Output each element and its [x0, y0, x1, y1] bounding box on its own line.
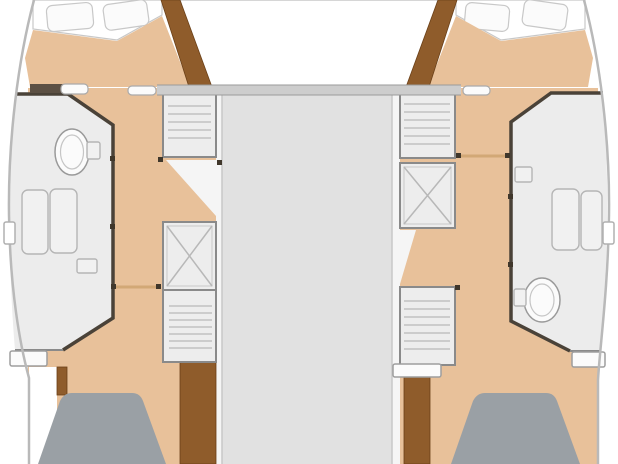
bulkhead-band	[157, 85, 461, 95]
pillow-icon	[102, 0, 149, 31]
hinge-dot	[508, 194, 513, 199]
pillow-icon	[521, 0, 568, 31]
floor-plan-canvas	[0, 0, 618, 464]
locker-icon	[515, 167, 532, 182]
starboard-stairs-fwd	[400, 90, 455, 158]
hinge-dot	[110, 156, 115, 161]
door-threshold	[463, 86, 490, 95]
hull-step	[4, 222, 15, 244]
starboard-stairs-aft	[400, 287, 455, 365]
pillow-icon	[46, 2, 94, 32]
port-stairs-aft	[163, 290, 216, 362]
port-stairs-fwd	[163, 92, 216, 157]
port-aft-wall	[180, 362, 216, 464]
sink-counter-icon	[581, 191, 602, 250]
toilet-cistern-icon	[87, 142, 100, 159]
sink-counter-icon	[50, 189, 77, 253]
step-tab	[393, 364, 441, 377]
shower-icon	[552, 189, 579, 250]
step-tab	[10, 351, 47, 366]
hinge-dot	[158, 157, 163, 162]
hinge-dot	[456, 153, 461, 158]
toilet-cistern-icon	[514, 289, 526, 306]
hinge-dot	[217, 160, 222, 165]
shower-icon	[22, 190, 48, 254]
locker-icon	[77, 259, 97, 273]
starboard-liner-strip	[392, 88, 400, 464]
door-threshold	[128, 86, 156, 95]
center-walkway	[222, 88, 392, 464]
port-bulkhead-stub	[30, 84, 63, 93]
door-threshold	[61, 84, 88, 94]
hull-step	[603, 222, 614, 244]
floor-plan	[0, 0, 618, 464]
port-aft-wall-outer	[57, 367, 67, 395]
hinge-dot	[455, 285, 460, 290]
hinge-dot	[508, 262, 513, 267]
hinge-dot	[156, 284, 161, 289]
hinge-dot	[111, 284, 116, 289]
hinge-dot	[110, 224, 115, 229]
starboard-aft-wall	[404, 374, 430, 464]
hinge-dot	[505, 153, 510, 158]
